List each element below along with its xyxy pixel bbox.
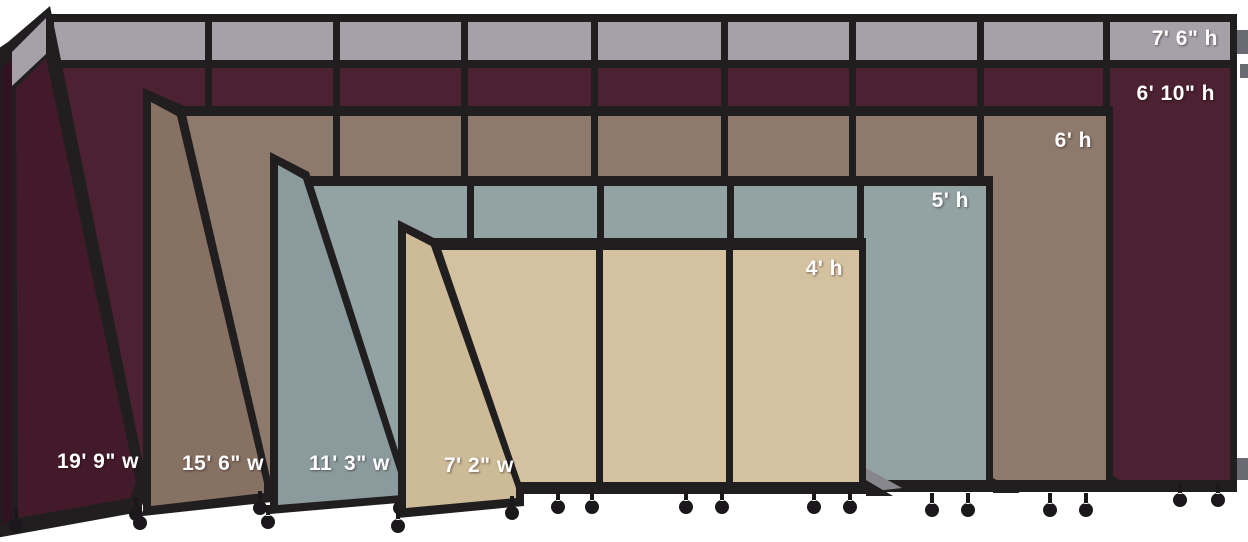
end-panel-edge [2, 60, 12, 526]
gray-top-band [54, 22, 1230, 60]
height-label-6ft10: 6' 10" h [1050, 82, 1215, 106]
width-label-11ft3: 11' 3" w [309, 452, 390, 476]
room-divider-size-comparison-image: 7' 6" h 6' 10" h 6' h 5' h 4' h 19' 9" w… [0, 0, 1248, 542]
width-label-15ft6: 15' 6" w [182, 452, 264, 476]
height-label-5ft: 5' h [837, 189, 969, 213]
height-label-7ft6: 7' 6" h [1058, 27, 1218, 51]
wall-mount-brackets [1237, 30, 1248, 480]
height-label-4ft: 4' h [711, 257, 843, 281]
width-label-19ft9: 19' 9" w [57, 450, 139, 474]
height-label-6ft: 6' h [960, 129, 1092, 153]
width-label-7ft2: 7' 2" w [444, 454, 514, 478]
